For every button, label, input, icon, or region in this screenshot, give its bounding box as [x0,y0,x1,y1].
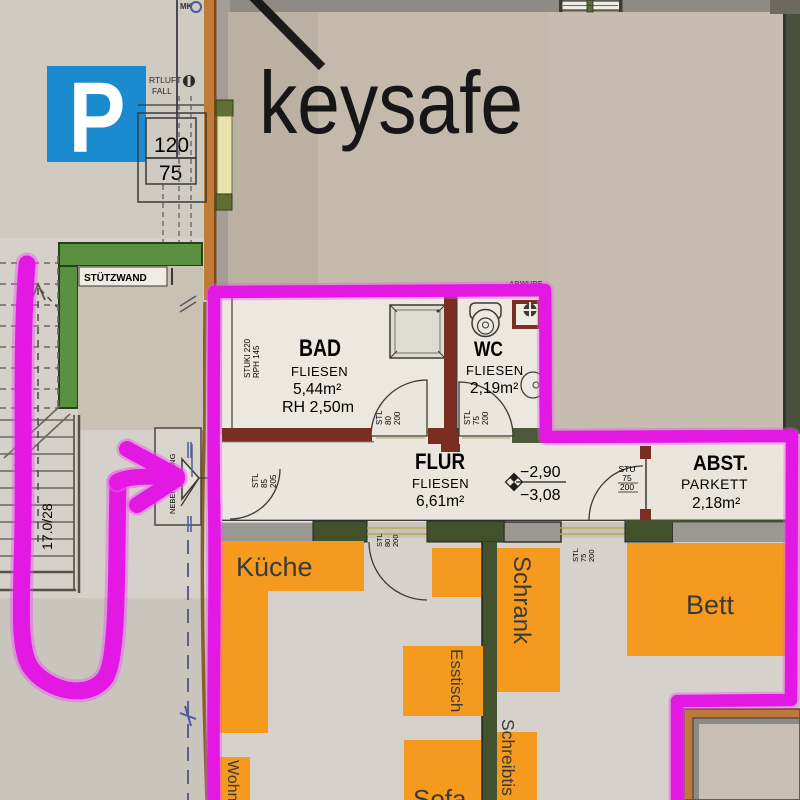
svg-text:ABST.: ABST. [693,452,748,475]
svg-text:FALL: FALL [152,86,172,96]
svg-text:6,61m²: 6,61m² [416,493,464,510]
svg-text:Schrank: Schrank [508,556,535,645]
svg-text:2,19m²: 2,19m² [470,380,518,397]
svg-text:Bett: Bett [686,590,735,620]
svg-text:200: 200 [393,411,402,425]
svg-text:BAD: BAD [299,335,341,362]
svg-text:205: 205 [269,474,278,488]
svg-text:FLIESEN: FLIESEN [466,363,524,378]
svg-text:5,44m²: 5,44m² [293,381,341,398]
svg-text:FLUR: FLUR [415,449,465,474]
svg-text:FLIESEN: FLIESEN [291,364,348,379]
svg-text:STUKI 220: STUKI 220 [243,338,252,378]
svg-text:200: 200 [620,482,634,492]
svg-text:85: 85 [260,479,269,488]
svg-text:keysafe: keysafe [259,53,523,152]
svg-text:75: 75 [472,416,481,425]
svg-text:RPH 145: RPH 145 [252,345,261,378]
svg-text:200: 200 [481,411,490,425]
svg-text:PARKETT: PARKETT [681,476,748,492]
svg-text:Schreibtis: Schreibtis [498,719,518,796]
svg-text:120: 120 [154,134,189,157]
svg-text:P: P [69,62,126,174]
svg-text:200: 200 [391,534,400,547]
svg-text:STL: STL [375,410,384,425]
svg-text:200: 200 [587,549,596,562]
svg-text:STÜTZWAND: STÜTZWAND [84,271,147,284]
svg-text:Esstisch: Esstisch [447,649,466,712]
svg-text:−2,90: −2,90 [520,464,561,481]
svg-text:STL: STL [251,473,260,488]
svg-text:2,18m²: 2,18m² [692,495,740,512]
svg-text:Küche: Küche [236,552,313,582]
svg-text:80: 80 [384,416,393,425]
svg-text:WC: WC [474,338,503,361]
svg-text:FLIESEN: FLIESEN [412,476,469,491]
svg-text:RH 2,50m: RH 2,50m [282,399,354,416]
svg-text:Wohnz: Wohnz [224,760,241,800]
svg-text:Sofa: Sofa [413,784,467,800]
svg-text:17.0/28: 17.0/28 [39,503,55,550]
svg-text:−3,08: −3,08 [520,487,561,504]
svg-text:STL: STL [463,410,472,425]
